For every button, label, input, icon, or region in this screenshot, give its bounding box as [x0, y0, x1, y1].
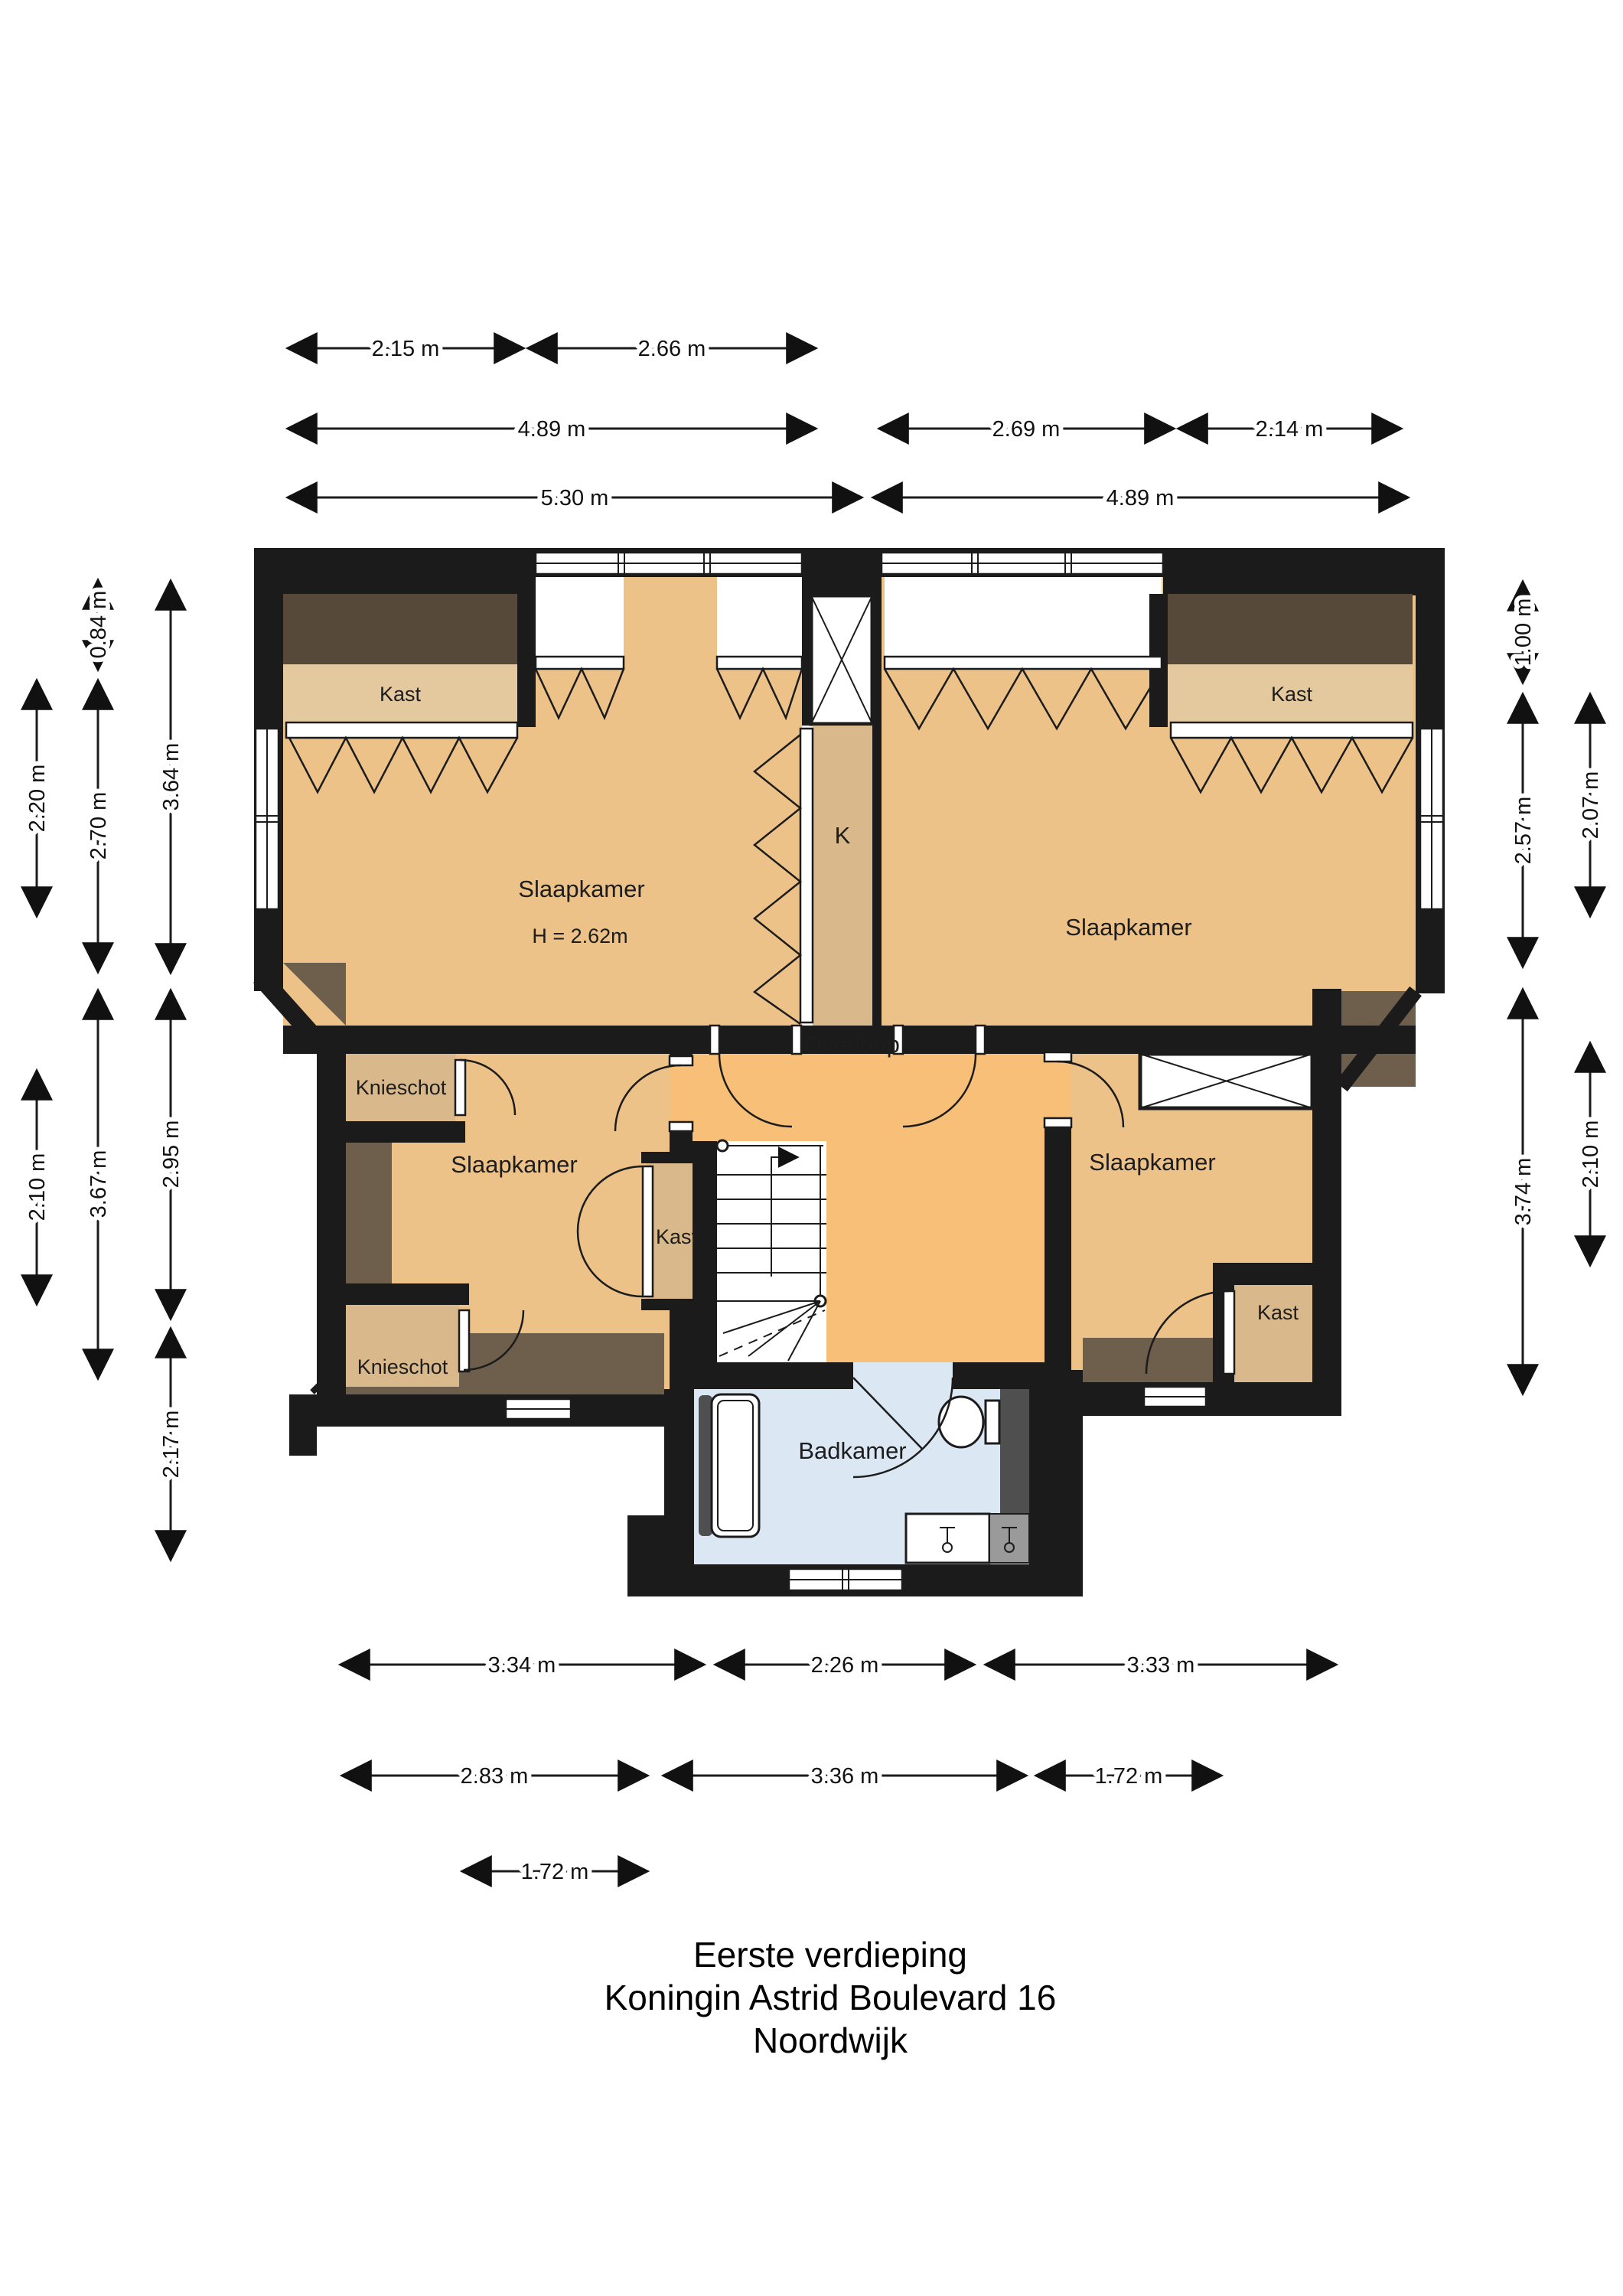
- dimension: 2.66 m: [529, 337, 815, 361]
- washbasin-icon: [906, 1514, 1029, 1563]
- dimension: 2.83 m: [343, 1764, 647, 1789]
- dimension: 2.70 m: [86, 681, 111, 971]
- dimension: 0.84 m: [86, 581, 111, 669]
- dimension: 4.89 m: [288, 417, 815, 442]
- closet-br-label: Kast: [1257, 1301, 1299, 1324]
- svg-text:2.10 m: 2.10 m: [1579, 1120, 1603, 1189]
- toilet-icon: [939, 1397, 999, 1447]
- plan-title: Eerste verdieping Koningin Astrid Boulev…: [605, 1935, 1057, 2060]
- closet-stairs-label: Kast: [656, 1225, 698, 1248]
- svg-text:2.10 m: 2.10 m: [25, 1153, 50, 1221]
- dimension: 3.74 m: [1511, 990, 1536, 1393]
- svg-text:2.95 m: 2.95 m: [159, 1120, 184, 1189]
- svg-text:2.57 m: 2.57 m: [1511, 797, 1536, 865]
- dimension: 5.30 m: [288, 486, 861, 510]
- room-label-bedroom-tl: Slaapkamer: [518, 876, 644, 902]
- room-label-bedroom-tl-height: H = 2.62m: [532, 925, 627, 947]
- svg-text:1.72 m: 1.72 m: [521, 1860, 589, 1884]
- dimension: 2.07 m: [1579, 695, 1603, 915]
- dimension: 1.00 m: [1511, 582, 1536, 682]
- floor-plan: Kast Kast K: [0, 0, 1623, 2296]
- dimensions-bottom: 3.34 m 2.26 m 3.33 m 2.83 m 3.36 m 1.72 …: [341, 1653, 1335, 1884]
- dimension: 1.72 m: [1037, 1764, 1221, 1789]
- svg-text:3.34 m: 3.34 m: [488, 1653, 556, 1678]
- svg-text:4.89 m: 4.89 m: [518, 417, 586, 442]
- window-top-left: [536, 553, 802, 574]
- dimension: 2.20 m: [25, 681, 50, 915]
- title-line2: Koningin Astrid Boulevard 16: [605, 1978, 1057, 2017]
- closet-tr-label: Kast: [1271, 683, 1313, 706]
- dimension: 3.36 m: [664, 1764, 1025, 1789]
- dimension: 1.72 m: [463, 1860, 647, 1884]
- dimension: 3.33 m: [986, 1653, 1335, 1678]
- flue-box: [1140, 1054, 1312, 1108]
- dimension: 4.89 m: [874, 486, 1407, 510]
- window-bottom-left-bedroom: [506, 1399, 571, 1419]
- svg-text:2.20 m: 2.20 m: [25, 765, 50, 833]
- dimension: 2.26 m: [716, 1653, 973, 1678]
- svg-text:2.14 m: 2.14 m: [1256, 417, 1324, 442]
- dimension: 2.10 m: [1579, 1044, 1603, 1264]
- dimension: 3.64 m: [159, 582, 184, 972]
- dimensions-right: 1.00 m 2.57 m 3.74 m 2.07 m 2.10 m: [1511, 582, 1603, 1393]
- window-top-right: [882, 553, 1163, 574]
- room-label-bedroom-bl: Slaapkamer: [451, 1151, 577, 1178]
- closet-k-label: K: [835, 822, 851, 849]
- room-label-bedroom-tr: Slaapkamer: [1065, 914, 1191, 941]
- svg-text:2.07 m: 2.07 m: [1579, 771, 1603, 840]
- knieschot-upper-label: Knieschot: [356, 1076, 447, 1099]
- dimension: 2.10 m: [25, 1071, 50, 1303]
- room-label-landing: Overloop: [803, 1031, 900, 1058]
- window-bottom-right-bedroom: [1144, 1387, 1206, 1407]
- svg-text:1.00 m: 1.00 m: [1511, 598, 1536, 667]
- floorplan-page: Kast Kast K: [0, 0, 1623, 2296]
- svg-text:0.84 m: 0.84 m: [86, 591, 111, 659]
- svg-text:3.64 m: 3.64 m: [159, 743, 184, 811]
- svg-text:3.33 m: 3.33 m: [1127, 1653, 1195, 1678]
- svg-text:2.70 m: 2.70 m: [86, 792, 111, 860]
- dimension: 2.14 m: [1179, 417, 1400, 442]
- title-line1: Eerste verdieping: [693, 1935, 967, 1975]
- dimension: 2.15 m: [288, 337, 523, 361]
- svg-text:4.89 m: 4.89 m: [1106, 486, 1175, 510]
- svg-text:3.74 m: 3.74 m: [1511, 1158, 1536, 1226]
- svg-text:2.83 m: 2.83 m: [461, 1764, 529, 1789]
- svg-text:5.30 m: 5.30 m: [541, 486, 609, 510]
- window-bathroom: [789, 1569, 902, 1590]
- svg-text:2.66 m: 2.66 m: [638, 337, 706, 361]
- dimensions-top: 2.15 m 2.66 m 4.89 m 2.69 m 2.14 m 5.30 …: [288, 337, 1407, 510]
- dimension: 3.34 m: [341, 1653, 703, 1678]
- dimension: 2.57 m: [1511, 695, 1536, 966]
- title-line3: Noordwijk: [753, 2020, 908, 2060]
- svg-text:1.72 m: 1.72 m: [1095, 1764, 1163, 1789]
- room-label-bedroom-br: Slaapkamer: [1089, 1149, 1215, 1176]
- svg-text:2.15 m: 2.15 m: [372, 337, 440, 361]
- knieschot-lower-label: Knieschot: [357, 1355, 448, 1378]
- shower-strip: [1000, 1389, 1029, 1519]
- svg-text:2.26 m: 2.26 m: [811, 1653, 879, 1678]
- dimension: 3.67 m: [86, 991, 111, 1378]
- svg-text:2.69 m: 2.69 m: [992, 417, 1061, 442]
- staircase: [717, 1140, 826, 1362]
- svg-text:2.17 m: 2.17 m: [159, 1411, 184, 1479]
- chimney-shaft: [811, 595, 872, 724]
- dimensions-left: 2.20 m 2.10 m 0.84 m 2.70 m 3.67 m 3.64 …: [25, 581, 184, 1559]
- window-right-wall: [1420, 729, 1443, 909]
- bathtub-icon: [699, 1394, 759, 1537]
- window-left-wall: [256, 729, 279, 909]
- svg-text:3.67 m: 3.67 m: [86, 1150, 111, 1218]
- room-label-bathroom: Badkamer: [798, 1437, 906, 1464]
- dimension: 2.69 m: [880, 417, 1173, 442]
- closet-tl-label: Kast: [380, 683, 422, 706]
- svg-text:3.36 m: 3.36 m: [811, 1764, 879, 1789]
- dimension: 2.17 m: [159, 1329, 184, 1559]
- dimension: 2.95 m: [159, 991, 184, 1318]
